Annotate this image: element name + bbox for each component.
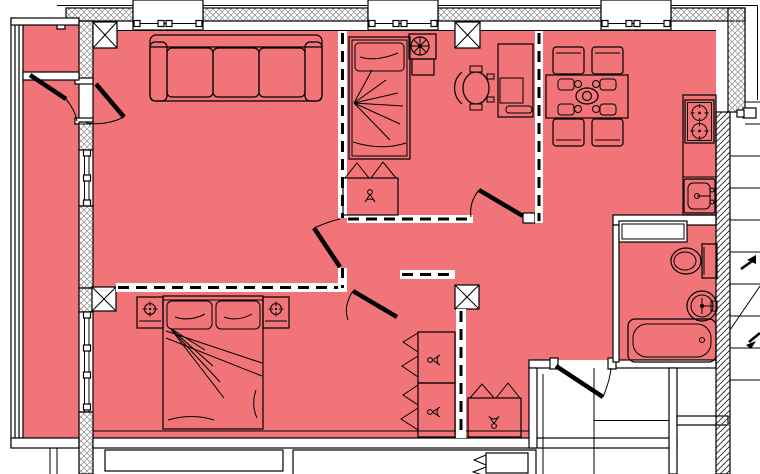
window-mullion	[393, 21, 399, 27]
window-mullion	[166, 21, 172, 27]
floor-plan-canvas	[0, 0, 760, 474]
balcony-upper-floor	[23, 25, 79, 72]
partition-post	[523, 213, 535, 223]
ext-wall-top-3	[438, 8, 601, 21]
window-north-3	[601, 0, 671, 30]
left-window-2	[79, 312, 93, 412]
stair-direction-arrow	[741, 255, 756, 269]
potted-plant	[411, 37, 429, 55]
round-wash-basin	[687, 291, 717, 321]
balcony-rail-line	[19, 25, 23, 438]
vestibule-east-wall	[669, 368, 677, 474]
built-in-cabinet	[619, 221, 687, 242]
window-north-2	[368, 0, 438, 30]
door-opening	[338, 218, 347, 268]
balcony-west-wall	[11, 18, 15, 447]
balcony-lower-floor	[23, 80, 79, 438]
neighbor-room-a	[105, 450, 283, 471]
south-wall	[93, 438, 677, 448]
window-mullion	[401, 21, 407, 27]
window-mullion	[134, 21, 140, 27]
door-frame-marker	[737, 110, 744, 117]
stair-direction-arrow	[746, 333, 760, 349]
window-mullion	[84, 345, 91, 351]
window-mullion	[196, 21, 202, 27]
vestibule-west-wall	[529, 368, 537, 448]
column-x	[455, 285, 479, 309]
door-opening	[347, 270, 400, 279]
ext-wall-top-2	[203, 8, 368, 21]
window-mullion	[84, 372, 91, 378]
door-frame-marker	[743, 108, 756, 118]
balcony-door-opening	[79, 80, 93, 122]
window-mullion	[431, 21, 437, 27]
ext-wall-right-corner	[728, 8, 745, 112]
window-mullion	[84, 404, 91, 410]
stair-break-line	[730, 286, 760, 330]
window-mullion	[634, 21, 640, 27]
column-x	[93, 22, 117, 48]
window-mullion	[602, 21, 608, 27]
left-window-1	[79, 150, 93, 206]
window-mullion	[84, 200, 91, 206]
floor-plan	[0, 0, 760, 474]
bathroom-west-wall	[613, 225, 619, 362]
column-x	[92, 287, 116, 311]
window-mullion	[369, 21, 375, 27]
neighbor-room-b	[293, 450, 536, 474]
staircase	[730, 156, 760, 380]
window-mullion	[84, 150, 91, 156]
window-north-1	[133, 0, 203, 30]
window-mullion	[626, 21, 632, 27]
window-mullion	[84, 175, 91, 181]
entry-wall-right	[611, 360, 716, 368]
window-mullion	[664, 21, 670, 27]
balcony-south-wall	[11, 438, 79, 448]
column-x	[455, 22, 480, 48]
window-mullion	[84, 312, 91, 318]
balcony-north-wall	[11, 18, 79, 25]
window-mullion	[158, 21, 164, 27]
east-wall-diagonal-hatch	[716, 112, 730, 474]
stair-treads	[730, 156, 760, 380]
